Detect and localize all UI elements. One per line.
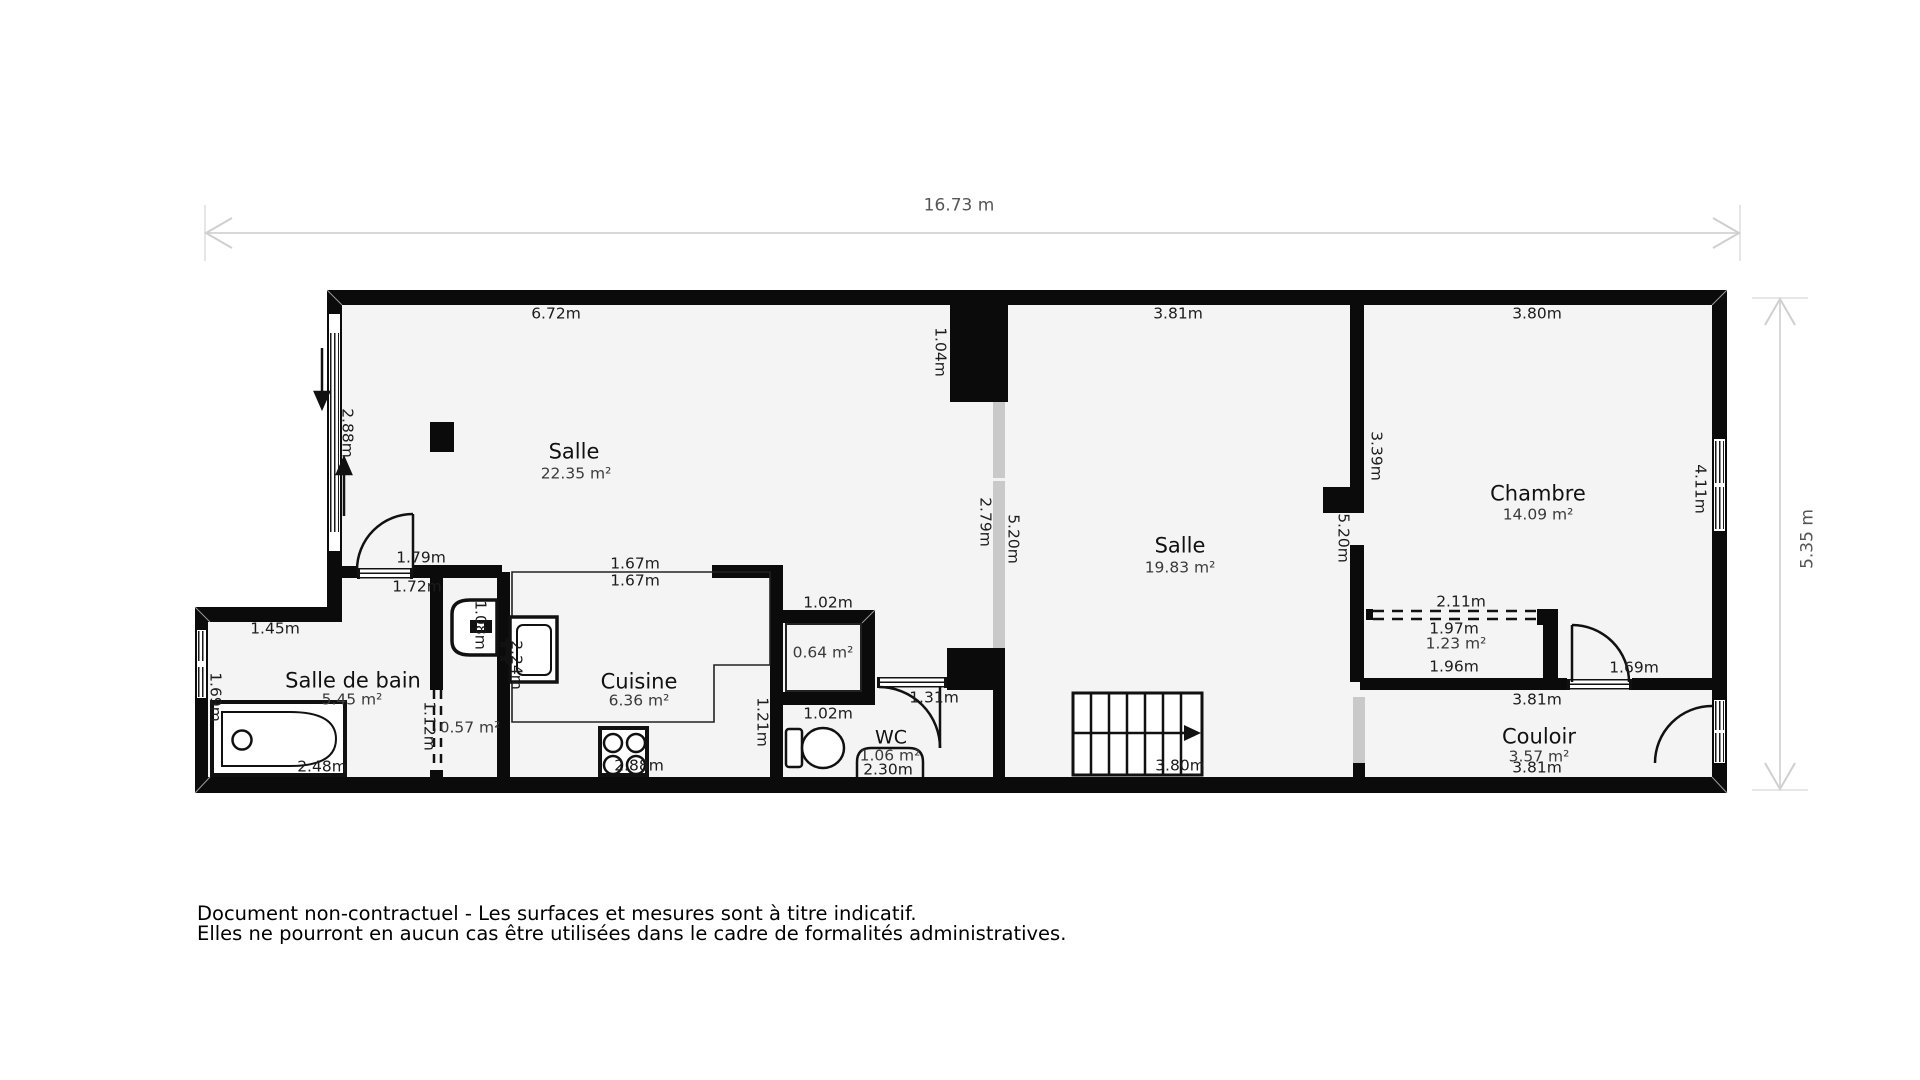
wall-right-mid [1712, 533, 1727, 698]
dim-wc-door: 1.31m [909, 689, 959, 706]
wall-couloir-top-left [1360, 678, 1567, 690]
dim-salle1-window: 2.88m [338, 408, 355, 458]
area-placard-cuisine: 0.64 m² [793, 644, 854, 661]
dim-placard-chambre-top: 2.11m [1436, 593, 1486, 610]
dim-total-height: 5.35 m [1799, 509, 1818, 569]
wall-cuisine-right [770, 578, 783, 777]
window-chambre-glazing-a [1715, 441, 1724, 483]
wall-salle2-chambre-upper [1350, 305, 1364, 487]
room-couloir-name: Couloir [1502, 725, 1576, 748]
dim-cuisine-open-top: 1.67m [610, 555, 660, 572]
dim-salle1-top: 6.72m [531, 305, 581, 322]
door-threshold-chambre [1567, 679, 1632, 690]
dim-sdb-window: 1.69m [206, 672, 223, 722]
wall-salle2-pier [1323, 487, 1364, 513]
dim-placard-cuisine-top: 1.02m [803, 594, 853, 611]
wall-left-block [327, 553, 342, 607]
room-salle1-name: Salle [549, 440, 600, 463]
room-sdb-name: Salle de bain [285, 669, 421, 692]
dim-pillar: 1.04m [931, 327, 948, 377]
dim-chambre-top: 3.80m [1512, 305, 1562, 322]
room-salle1-area: 22.35 m² [541, 465, 612, 482]
wall-column-salle1 [430, 422, 454, 452]
window-couloir-glazing-b [1715, 733, 1724, 762]
dim-cuisine-right: 1.21m [753, 697, 770, 747]
window-sdb-glazing-a [198, 631, 205, 661]
room-sdb-area: 5.45 m² [322, 691, 383, 708]
window-couloir-glazing-a [1715, 701, 1724, 730]
dim-cuisine-bottom: 2.88m [614, 757, 664, 774]
area-placard-chambre: 1.23 m² [1426, 635, 1487, 652]
dim-salle2-top: 3.81m [1153, 305, 1203, 322]
glazed-partition-salle [993, 402, 1005, 648]
dim-couloir-bottom: 3.81m [1512, 759, 1562, 776]
disclaimer-line-2: Elles ne pourront en aucun cas être util… [197, 922, 1066, 945]
room-chambre-area: 14.09 m² [1503, 506, 1574, 523]
room-cuisine-name: Cuisine [601, 670, 678, 693]
room-salle2-area: 19.83 m² [1145, 559, 1216, 576]
window-chambre-glazing-b [1715, 487, 1724, 529]
wall-placard-cuisine-top [783, 610, 875, 623]
room-wc-name: WC [875, 728, 907, 749]
window-sdb-glazing-b [198, 667, 205, 697]
dim-sdb-top: 1.45m [250, 620, 300, 637]
door-threshold-wc [877, 677, 947, 688]
dim-salle2-left: 5.20m [1004, 514, 1021, 564]
dim-chambre-right: 4.11m [1691, 464, 1708, 514]
wall-couloir-glazing-stub [1353, 763, 1365, 777]
glazed-partition-joint [993, 478, 1005, 481]
dim-placard-cuisine-bottom: 1.02m [803, 705, 853, 722]
dim-bathtub: 2.48m [297, 758, 347, 775]
dim-glazing: 2.79m [976, 497, 993, 547]
glazed-partition-couloir [1353, 697, 1365, 763]
dim-wc: 2.30m [863, 761, 913, 778]
wall-couloir-top-right [1632, 678, 1713, 690]
wall-cuisine-top-right [712, 565, 783, 578]
wall-sdb-cuisine-a-stub [430, 770, 443, 778]
room-fill-main [342, 305, 1712, 777]
wall-pillar [950, 305, 1008, 402]
room-cuisine-area: 6.36 m² [609, 692, 670, 709]
wall-partition-lower [993, 690, 1005, 777]
wall-placard-chambre-right [1543, 612, 1558, 678]
dim-cuisine-left: 2.24m [507, 640, 524, 690]
dim-door-entree-bottom: 1.72m [392, 578, 442, 595]
dim-door-entree-top: 1.79m [396, 549, 446, 566]
wall-placard-cuisine-bottom [783, 692, 875, 705]
wall-left-top-stub [327, 290, 342, 312]
wall-top [327, 290, 1727, 305]
wall-entree-right [413, 565, 502, 578]
wall-salle2-chambre-lower [1350, 545, 1364, 682]
wall-right-upper [1712, 290, 1727, 437]
dim-chambre-door: 1.69m [1609, 659, 1659, 676]
dim-basin-zone: 1.08m [471, 600, 488, 650]
dim-placard-chambre-bottom: 1.96m [1429, 658, 1479, 675]
wall-placard-chambre-stub [1366, 609, 1373, 620]
room-chambre-name: Chambre [1490, 482, 1586, 505]
dim-placard-sdb: 1.12m [420, 701, 437, 751]
room-salle2-name: Salle [1155, 534, 1206, 557]
dim-total-width: 16.73 m [924, 197, 995, 216]
area-placard-sdb: 0.57 m² [440, 719, 501, 736]
dim-stairs: 3.80m [1155, 757, 1205, 774]
dim-couloir-top: 3.81m [1512, 691, 1562, 708]
wall-bottom [195, 777, 1727, 793]
dim-cuisine-open-bottom: 1.67m [610, 572, 660, 589]
wall-wc-corner-block [947, 648, 1005, 690]
floor-plan: 16.73 m5.35 m6.72m3.81m3.80mSalle22.35 m… [0, 0, 1920, 1080]
wall-entree-left-stub [342, 566, 357, 578]
dim-salle2-right: 5.20m [1334, 513, 1351, 563]
dim-chambre-left: 3.39m [1367, 431, 1384, 481]
